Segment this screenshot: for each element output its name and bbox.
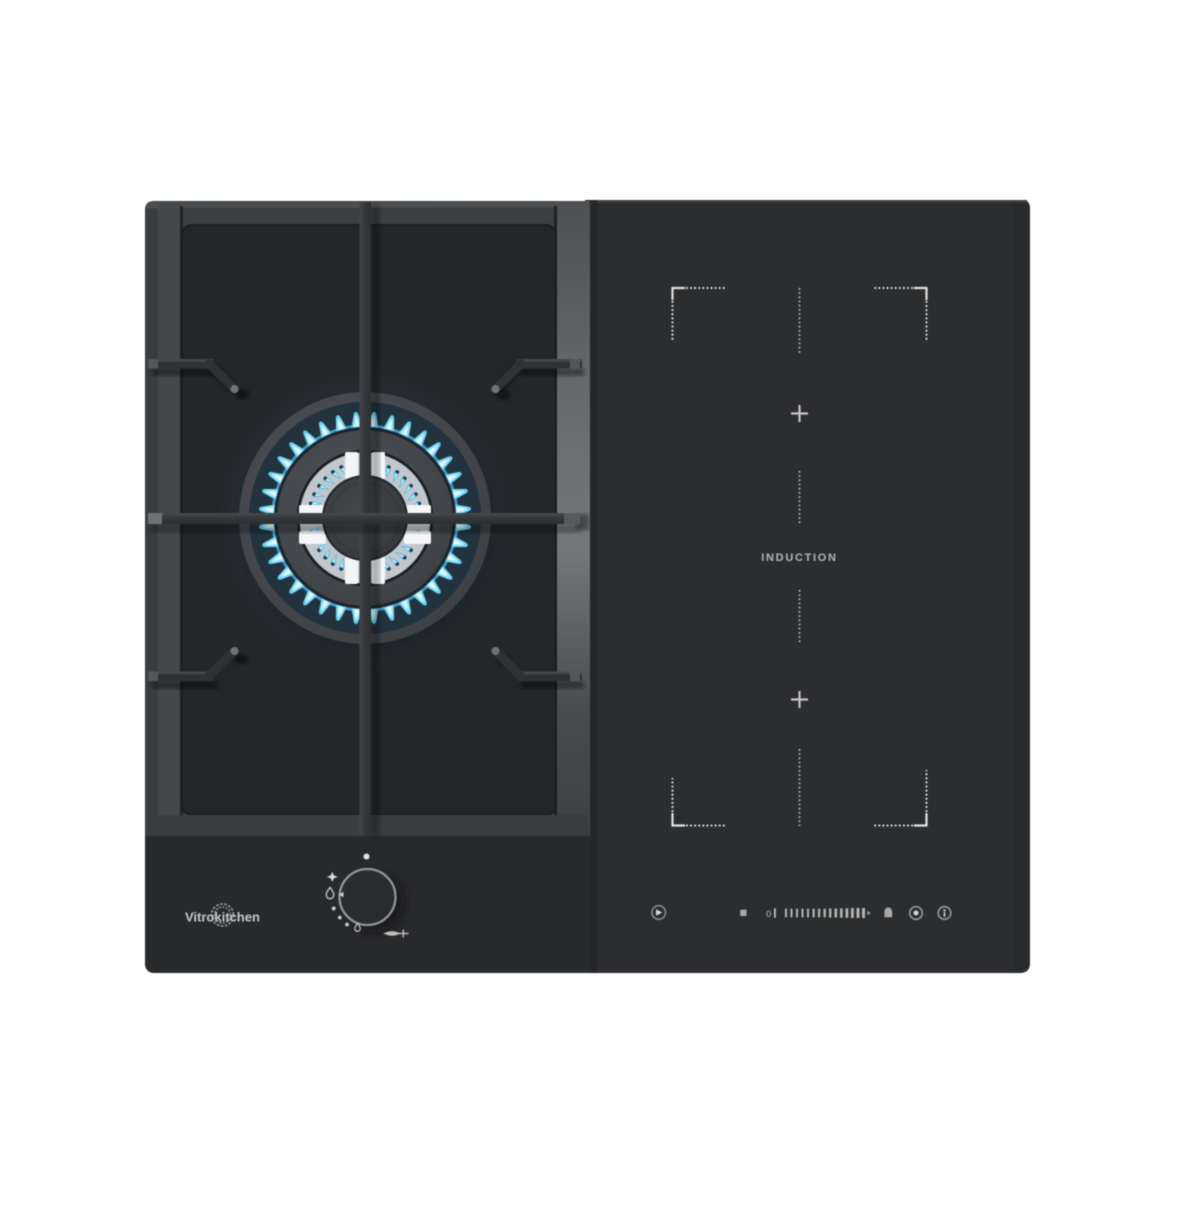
svg-text:INDUCTION: INDUCTION — [761, 552, 837, 564]
svg-text:0: 0 — [766, 909, 771, 920]
svg-text:Vitrokitchen: Vitrokitchen — [185, 910, 260, 925]
